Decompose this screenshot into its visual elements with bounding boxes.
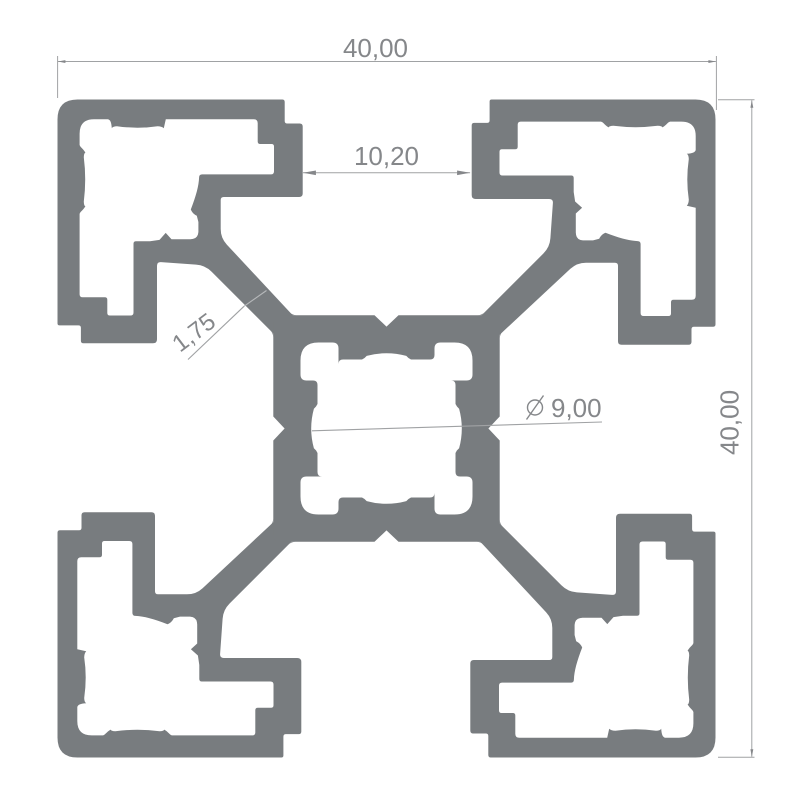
svg-text:9,00: 9,00 [551,393,602,423]
svg-text:40,00: 40,00 [343,33,408,63]
svg-text:40,00: 40,00 [715,390,745,455]
svg-text:10,20: 10,20 [354,141,419,171]
